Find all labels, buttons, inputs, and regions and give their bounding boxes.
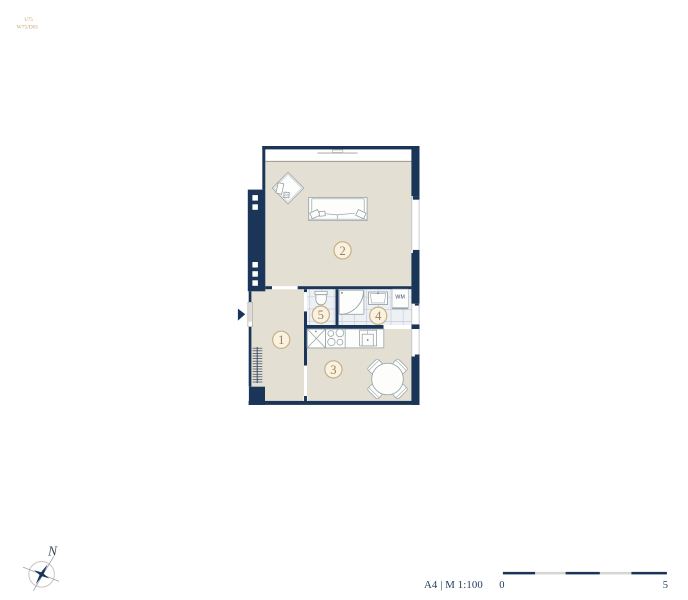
svg-text:4: 4 — [375, 309, 382, 323]
svg-text:5: 5 — [663, 580, 668, 591]
svg-text:WM: WM — [395, 295, 405, 301]
svg-text:5: 5 — [318, 308, 324, 322]
svg-text:1: 1 — [278, 333, 284, 347]
svg-text:3: 3 — [330, 363, 336, 377]
svg-text:2: 2 — [339, 244, 345, 258]
svg-text:W75/D01: W75/D01 — [17, 25, 39, 31]
svg-text:N: N — [47, 544, 58, 559]
svg-text:0: 0 — [499, 580, 504, 591]
svg-text:1/75: 1/75 — [24, 18, 33, 23]
svg-text:A4 | M 1:100: A4 | M 1:100 — [424, 579, 483, 591]
